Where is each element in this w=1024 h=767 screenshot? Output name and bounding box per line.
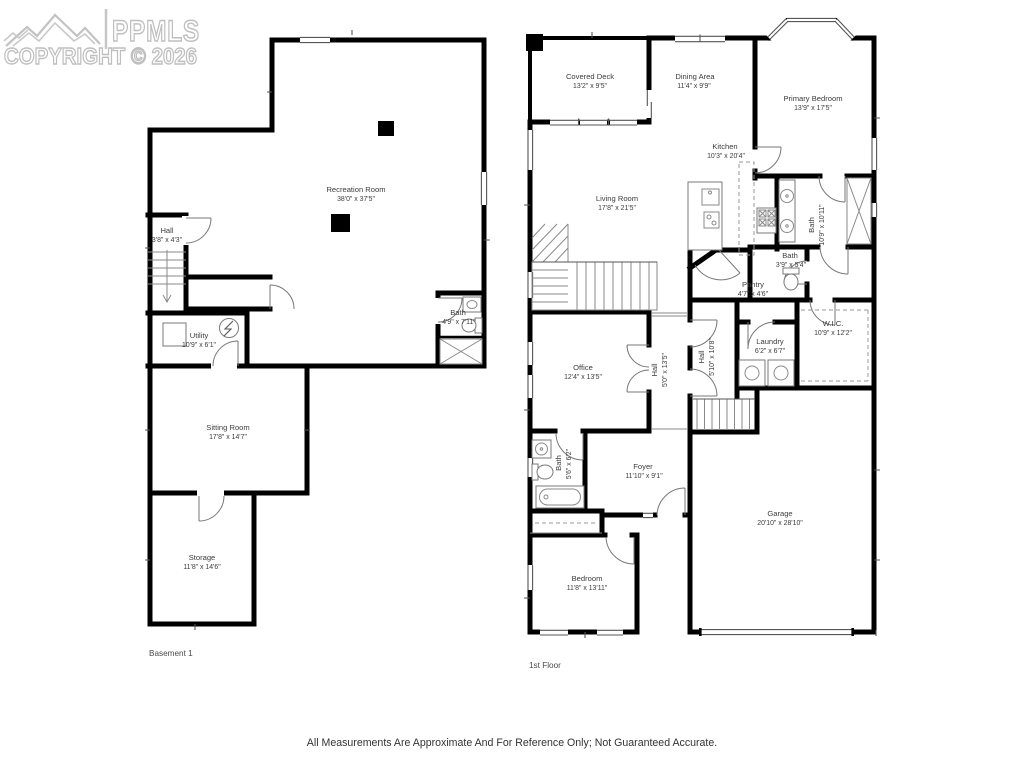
room-dims: 11'8" x 13'11": [567, 585, 608, 592]
room-label-recreation-room: Recreation Room 38'0" x 37'5": [326, 185, 385, 203]
room-dims: 11'8" x 14'6": [183, 564, 221, 571]
door-arc-icon: [627, 345, 649, 367]
column-post: [378, 121, 394, 136]
unfinished-area-icon: [440, 339, 482, 364]
room-dims: 3'9" x 5'4": [776, 262, 807, 269]
room-name: Bath: [450, 308, 466, 317]
room-name: Kitchen: [712, 142, 737, 151]
room-label-hall-510: Hall 5'10" x 10'8": [697, 338, 716, 376]
basement-door-gaps: [182, 216, 442, 497]
room-dims: 17'8" x 21'5": [598, 205, 636, 212]
room-label-living-room: Living Room 17'8" x 21'5": [596, 194, 638, 212]
mountain-logo-icon: [4, 15, 100, 46]
electrical-panel-icon: [220, 319, 239, 338]
basement-window-icon: [300, 36, 488, 205]
door-arc-icon: [627, 370, 649, 392]
dryer-icon: [768, 360, 794, 386]
main-stairs-icon: [532, 224, 657, 310]
room-name: Utility: [190, 331, 209, 340]
room-name: Storage: [189, 553, 216, 562]
sink-icon: [532, 440, 551, 458]
room-label-basement-hall: Hall 3'8" x 4'3": [152, 226, 183, 244]
room-name: W.I.C.: [823, 319, 844, 328]
room-label-storage: Storage 11'8" x 14'6": [183, 553, 221, 571]
refrigerator-icon: [739, 162, 754, 255]
door-arc-icon: [755, 147, 781, 173]
watermark-copyright: COPYRIGHT © 2026: [4, 43, 197, 69]
washer-icon: [739, 360, 765, 386]
room-label-bedroom: Bedroom 11'8" x 13'11": [567, 574, 608, 592]
room-label-utility: Utility 10'9" x 6'1": [182, 331, 217, 349]
door-arc-icon: [820, 247, 848, 274]
room-label-wic: W.I.C. 10'9" x 12'2": [814, 319, 852, 337]
room-name: Primary Bedroom: [783, 94, 842, 103]
room-label-small-bath: Bath 3'9" x 5'4": [776, 251, 807, 269]
door-arc-icon: [695, 249, 740, 280]
room-dims: 5'6" x 6'2": [566, 448, 573, 479]
room-dims: 10'9" x 10'11": [819, 204, 826, 246]
room-dims: 4'9" x 7'11": [442, 319, 476, 326]
basement-stairs-icon: [148, 250, 186, 302]
room-label-sitting-room: Sitting Room 17'8" x 14'7": [206, 423, 249, 441]
room-name: Bath: [807, 217, 816, 233]
first-floor-plan: Covered Deck 13'2" x 9'5" Dining Area 11…: [524, 18, 880, 670]
door-arc-icon: [606, 537, 634, 564]
room-label-kitchen: Kitchen 10'3" x 20'4": [707, 142, 745, 160]
room-dims: 11'10" x 9'1": [625, 473, 663, 480]
room-dims: 4'7" x 4'6": [738, 291, 769, 298]
room-label-bath-56: Bath 5'6" x 6'2": [554, 448, 573, 479]
room-label-foyer: Foyer 11'10" x 9'1": [625, 462, 663, 480]
room-name: Laundry: [756, 337, 784, 346]
floor-label-basement: Basement 1: [149, 649, 193, 658]
shower-icon: [847, 178, 871, 244]
room-dims: 10'3" x 20'4": [707, 153, 745, 160]
room-name: Living Room: [596, 194, 638, 203]
toilet-icon: [532, 464, 553, 480]
room-name: Sitting Room: [206, 423, 249, 432]
room-name: Covered Deck: [566, 72, 614, 81]
room-name: Hall: [697, 350, 706, 363]
range-icon: [757, 208, 776, 233]
room-label-primary-bedroom: Primary Bedroom 13'9" x 17'5": [783, 94, 842, 112]
sliding-door-icon: [646, 90, 653, 118]
room-dims: 5'10" x 10'8": [709, 338, 716, 376]
room-name: Bath: [782, 251, 798, 260]
room-label-pantry: Pantry 4'7" x 4'6": [738, 280, 769, 298]
room-label-primary-bath: Bath 10'9" x 10'11": [807, 204, 826, 246]
room-label-garage: Garage 20'10" x 28'10": [757, 509, 803, 527]
room-name: Garage: [767, 509, 792, 518]
room-dims: 10'9" x 6'1": [182, 342, 217, 349]
room-label-office: Office 12'4" x 13'5": [564, 363, 602, 381]
room-dims: 17'8" x 14'7": [209, 434, 247, 441]
basement-stairwell-icon: [693, 399, 755, 430]
room-name: Recreation Room: [326, 185, 385, 194]
room-dims: 12'4" x 13'5": [564, 374, 602, 381]
door-arc-icon: [199, 496, 224, 521]
watermark: PPMLS COPYRIGHT © 2026: [4, 9, 200, 69]
disclaimer-text: All Measurements Are Approximate And For…: [307, 737, 717, 749]
room-dims: 20'10" x 28'10": [757, 520, 803, 527]
room-label-hall-50: Hall 5'0" x 13'5": [650, 352, 669, 387]
room-name: Hall: [650, 363, 659, 376]
garage-door-icon: [699, 627, 854, 638]
bedroom-closet: [530, 523, 602, 533]
room-dims: 6'2" x 6'7": [755, 348, 786, 355]
column-post: [331, 214, 350, 232]
door-arc-icon: [657, 488, 685, 515]
room-label-dining-area: Dining Area 11'4" x 9'9": [675, 72, 715, 90]
floorplan-canvas: PPMLS COPYRIGHT © 2026: [0, 0, 1024, 767]
floorplan-page: PPMLS COPYRIGHT © 2026: [0, 0, 1024, 767]
double-vanity-icon: [779, 180, 795, 242]
room-dims: 13'2" x 9'5": [573, 83, 608, 90]
basement-plan: Recreation Room 38'0" x 37'5" Hall 3'8" …: [145, 30, 490, 658]
floor-label-first-floor: 1st Floor: [529, 661, 561, 670]
room-name: Bedroom: [572, 574, 603, 583]
room-name: Hall: [160, 226, 173, 235]
bathtub-icon: [536, 486, 584, 508]
room-name: Dining Area: [675, 72, 715, 81]
room-name: Foyer: [633, 462, 653, 471]
room-name: Bath: [554, 455, 563, 471]
toilet-icon: [783, 268, 799, 290]
room-dims: 10'9" x 12'2": [814, 330, 852, 337]
room-name: Office: [573, 363, 593, 372]
room-dims: 13'9" x 17'5": [794, 105, 832, 112]
room-dims: 5'0" x 13'5": [662, 352, 669, 387]
room-label-laundry: Laundry 6'2" x 6'7": [755, 337, 786, 355]
room-dims: 3'8" x 4'3": [152, 237, 183, 244]
door-arc-icon: [819, 176, 845, 202]
column-post: [526, 34, 543, 51]
room-dims: 11'4" x 9'9": [677, 83, 711, 90]
room-dims: 38'0" x 37'5": [337, 196, 375, 203]
door-arc-icon: [270, 285, 294, 309]
room-name: Pantry: [742, 280, 764, 289]
room-label-covered-deck: Covered Deck 13'2" x 9'5": [566, 72, 614, 90]
kitchen-island: [688, 182, 722, 250]
